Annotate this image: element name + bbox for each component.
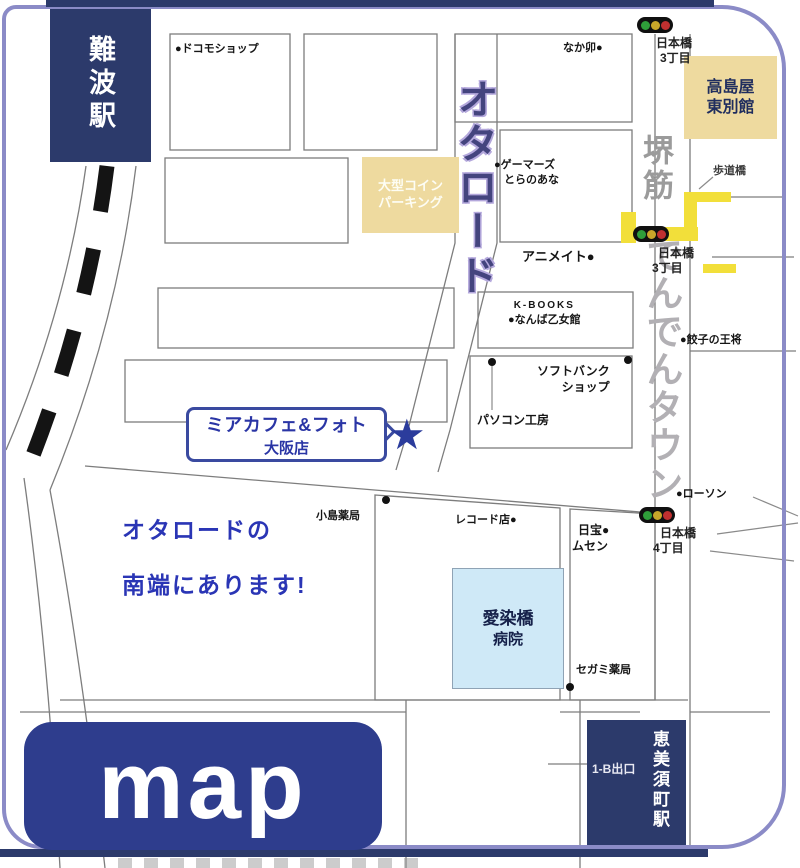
cropped-text-fragments — [118, 858, 430, 868]
nihonbashi-3chome-label-top: 日本橋 3丁目 — [656, 36, 692, 66]
poi-kbooks-otomekan: K-BOOKS ●なんば乙女館 — [508, 299, 581, 327]
traffic-light-icon — [639, 507, 675, 523]
traffic-light-icon — [633, 226, 669, 242]
traffic-light-icon — [637, 17, 673, 33]
location-note: オタロードの 南端にあります! — [122, 503, 307, 613]
map-logo: map — [24, 722, 382, 850]
takashimaya-east-annex: 高島屋 東別館 — [684, 56, 777, 139]
namba-station-label: 難波駅 — [81, 35, 120, 134]
railway-line — [24, 166, 107, 478]
poi-animate: アニメイト● — [522, 248, 595, 266]
shop-name: ミアカフェ&フォト — [206, 411, 368, 437]
shop-branch: 大阪店 — [264, 437, 309, 458]
map-logo-text: map — [98, 731, 307, 841]
poi-gyoza-ohsho: ●餃子の王将 — [680, 333, 742, 348]
poi-nippo-musen: 日宝● ムセン — [578, 522, 609, 554]
poi-record-shop: レコード店● — [455, 513, 517, 528]
poi-segami-pharmacy: セガミ薬局 — [576, 663, 631, 678]
nihonbashi-3chome-label-mid: 日本橋 3丁目 — [658, 246, 694, 276]
frame-bottom-bar — [0, 849, 708, 857]
sakaisuji-street-label: 堺筋 — [633, 134, 678, 204]
namba-station-box: 難波駅 — [50, 7, 151, 162]
poi-pc-kobo: パソコン工房 — [477, 412, 549, 428]
ebisucho-station-box: 恵美須町駅 1-B出口 — [587, 720, 686, 850]
shop-star-icon: ★ — [388, 414, 426, 456]
poi-docomo-shop: ●ドコモショップ — [175, 42, 259, 57]
crosswalk-mark — [703, 264, 736, 273]
pedestrian-bridge-label: 歩道橋 — [713, 164, 746, 179]
ebisucho-exit-label: 1-B出口 — [592, 760, 635, 777]
shop-callout-bubble: ミアカフェ&フォト 大阪店 — [186, 407, 387, 462]
access-map: 高島屋 東別館 大型コイン パーキング 愛染橋 病院 オタロード 堺筋 でんでん… — [0, 0, 800, 868]
poi-kojima-pharmacy: 小島薬局 — [316, 509, 360, 524]
poi-gamers-toranoana: ●ゲーマーズ とらのあな — [494, 158, 559, 188]
ebisucho-station-label: 恵美須町駅 — [647, 730, 672, 830]
frame-top-bar — [46, 0, 714, 7]
ota-road-street-label: オタロード — [444, 78, 504, 328]
aizenbashi-hospital: 愛染橋 病院 — [452, 568, 564, 689]
poi-softbank-shop: ソフトバンク ショップ — [537, 363, 610, 395]
nihonbashi-4chome-label: 日本橋 4丁目 — [660, 526, 696, 556]
poi-nakau: なか卯● — [563, 41, 603, 56]
poi-lawson: ●ローソン — [676, 487, 727, 502]
